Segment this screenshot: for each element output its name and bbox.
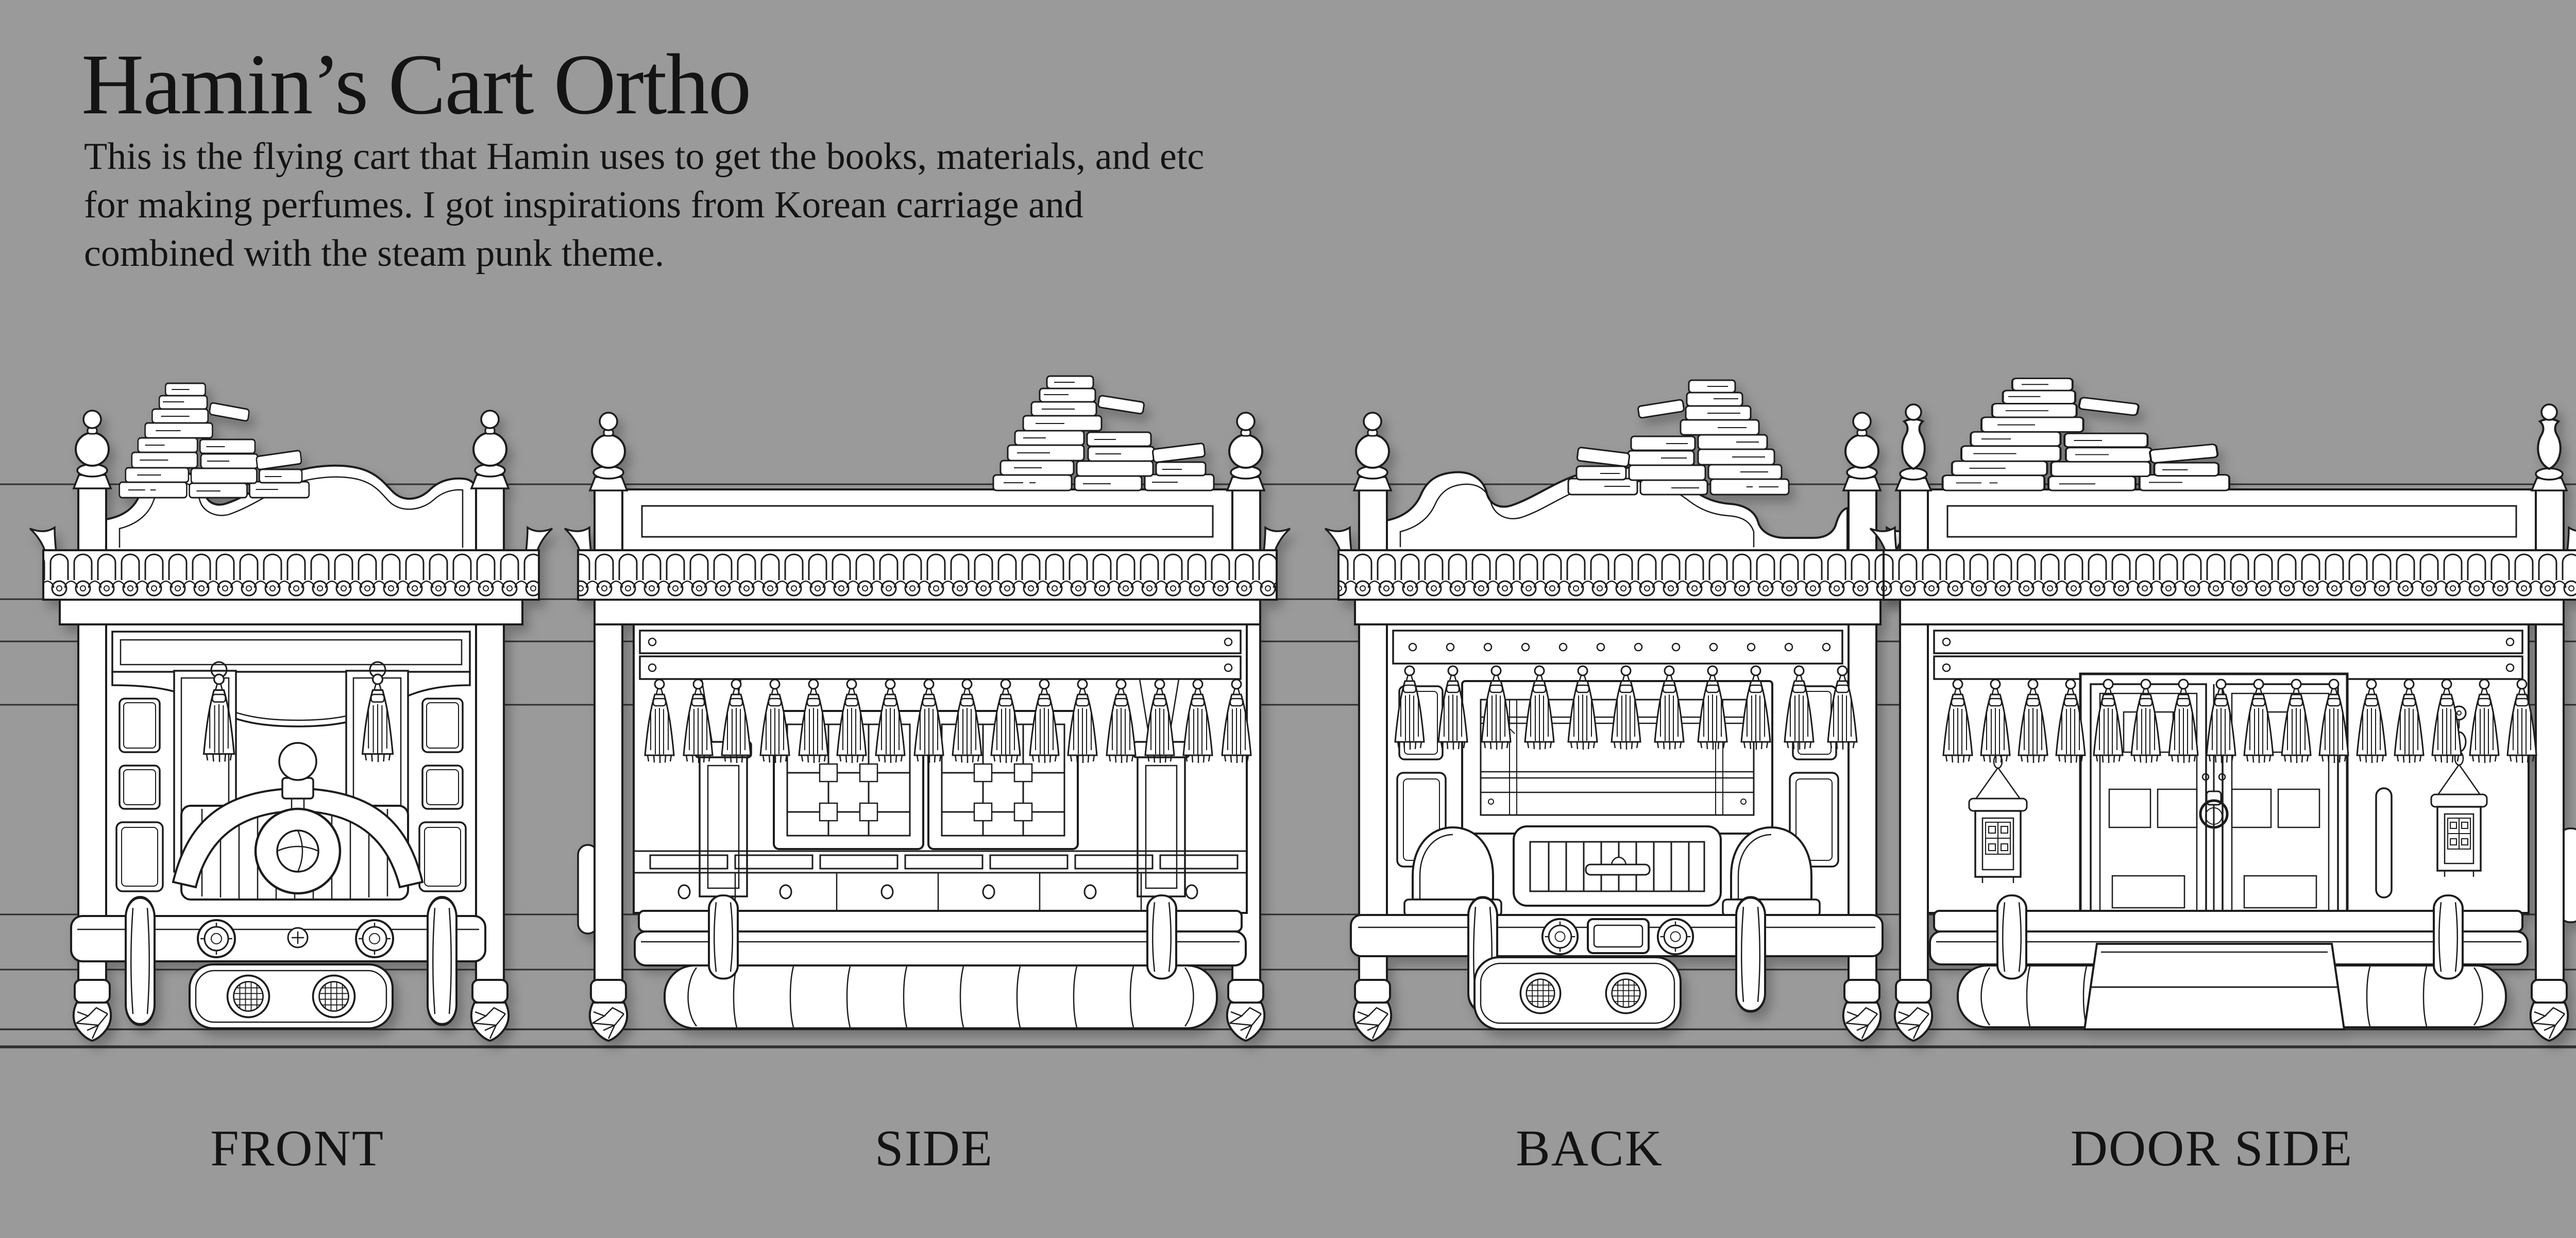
front-book-pile [120, 383, 309, 498]
door-side-view-drawing [1870, 378, 2576, 1041]
back-grille [1514, 826, 1721, 906]
front-light-box [190, 964, 393, 1028]
door-side-step [2084, 944, 2344, 1029]
side-book-pile [993, 376, 1214, 490]
view-label-door-side: DOOR SIDE [2071, 1120, 2353, 1177]
view-label-side: SIDE [875, 1120, 993, 1177]
orthographic-drawings: FRONT SIDE BACK DOOR SIDE [0, 0, 2576, 1238]
back-light-box [1475, 957, 1681, 1029]
design-sheet: Hamin’s Cart Ortho This is the flying ca… [0, 0, 2576, 1238]
view-label-front: FRONT [210, 1120, 384, 1177]
back-book-pile [1568, 380, 1789, 495]
side-air-cushion [665, 965, 1217, 1028]
front-view-drawing [30, 383, 552, 1041]
side-view-drawing [565, 376, 1290, 1041]
back-view-drawing [1325, 380, 1911, 1041]
door-side-book-pile [1943, 378, 2229, 490]
side-signboard [622, 489, 1232, 551]
view-label-back: BACK [1516, 1120, 1663, 1177]
door-side-signboard [1928, 489, 2536, 551]
